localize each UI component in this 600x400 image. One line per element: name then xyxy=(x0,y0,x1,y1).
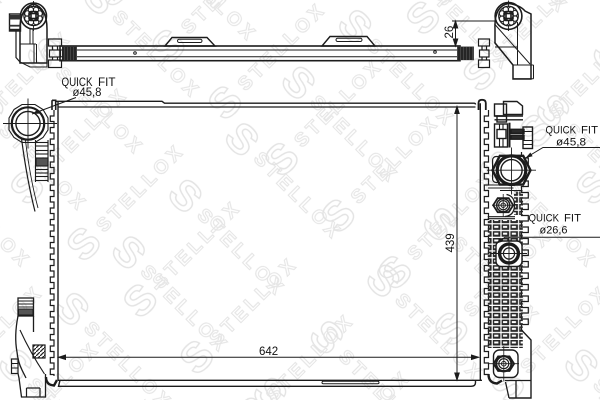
svg-text:ø45,8: ø45,8 xyxy=(73,87,102,99)
svg-text:QUICK: QUICK xyxy=(546,125,577,137)
svg-text:FIT: FIT xyxy=(564,213,581,225)
svg-text:26: 26 xyxy=(444,26,456,39)
svg-text:QUICK: QUICK xyxy=(529,213,560,225)
svg-text:ø45,8: ø45,8 xyxy=(556,137,586,149)
svg-text:642: 642 xyxy=(259,346,278,358)
svg-text:FIT: FIT xyxy=(581,125,598,137)
svg-text:ø26,6: ø26,6 xyxy=(540,225,568,237)
svg-text:439: 439 xyxy=(445,233,457,252)
